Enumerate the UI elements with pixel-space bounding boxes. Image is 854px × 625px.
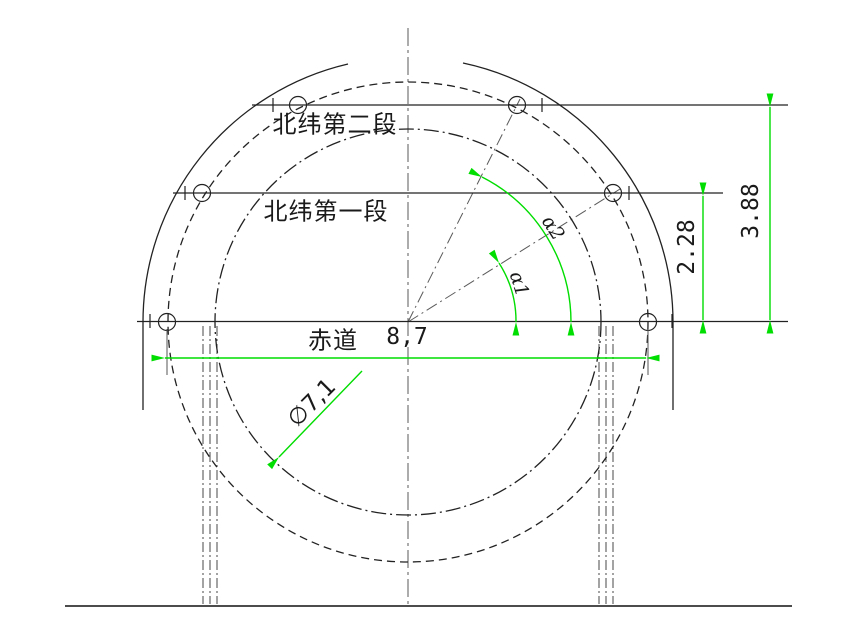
object-lines [137, 63, 788, 562]
radial-line-steep [408, 99, 520, 322]
equator-label: 赤道 [308, 321, 358, 356]
drawing-geometry [0, 0, 854, 625]
lat2-height-dimension-text: 3.88 [738, 183, 764, 238]
dim-angle2-arc [482, 177, 571, 322]
intersection-markers [150, 97, 672, 331]
equator-width-dimension-text: 8,7 [386, 324, 428, 350]
lat1-height-dimension-text: 2.28 [674, 219, 700, 274]
latitude1-label: 北纬第一段 [264, 192, 389, 227]
centerlines [408, 28, 620, 605]
latitude2-label: 北纬第二段 [273, 105, 398, 140]
dimension-lines [165, 107, 770, 457]
cad-drawing: 北纬第二段 北纬第一段 赤道 8,7 ∅7,1 2.28 3.88 α1 α2 [0, 0, 854, 625]
